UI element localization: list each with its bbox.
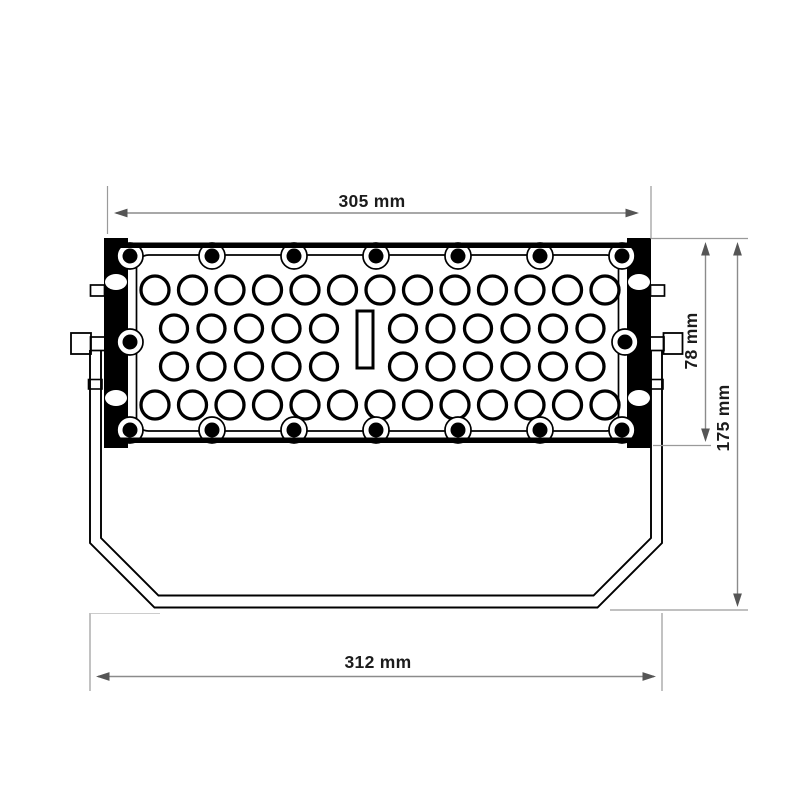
hinge-neck-left — [91, 337, 106, 351]
dimension-label-bottom-width: 312 mm — [345, 652, 412, 672]
vent-hole — [516, 391, 544, 419]
pin-left — [91, 285, 105, 296]
screw-head — [123, 423, 138, 438]
screw-head — [618, 335, 633, 350]
screw-head — [615, 249, 630, 264]
vent-hole — [273, 353, 300, 380]
screw-head — [533, 249, 548, 264]
hinge-knob-left — [71, 333, 91, 354]
vent-hole — [161, 315, 188, 342]
dimension-drawing-page: 305 mm 78 mm 175 mm 312 m — [0, 0, 800, 800]
hinge-neck-right — [650, 337, 664, 351]
vent-hole — [540, 315, 567, 342]
dimension-label-overall-height: 175 mm — [713, 385, 733, 452]
vent-hole — [441, 391, 469, 419]
vent-hole — [516, 276, 544, 304]
vent-hole — [390, 315, 417, 342]
vent-hole — [141, 276, 169, 304]
vent-hole — [329, 276, 357, 304]
vent-hole — [427, 353, 454, 380]
vent-hole — [554, 391, 582, 419]
screw-head — [123, 249, 138, 264]
vent-hole — [366, 391, 394, 419]
vent-hole — [329, 391, 357, 419]
vent-hole — [179, 391, 207, 419]
vent-hole — [502, 353, 529, 380]
vent-hole — [291, 391, 319, 419]
screw-head — [205, 423, 220, 438]
vent-hole — [479, 276, 507, 304]
screw-head — [451, 249, 466, 264]
arrowhead-left — [114, 209, 128, 218]
vent-hole — [236, 315, 263, 342]
vent-hole — [502, 315, 529, 342]
vent-hole — [273, 315, 300, 342]
vent-hole — [198, 353, 225, 380]
screw-head — [451, 423, 466, 438]
body-edge-top — [106, 243, 649, 249]
vent-hole — [554, 276, 582, 304]
vent-hole — [254, 391, 282, 419]
bracket-hole — [628, 274, 650, 290]
screw-head — [533, 423, 548, 438]
vent-hole — [216, 391, 244, 419]
arrowhead-right — [626, 209, 640, 218]
vent-hole — [540, 353, 567, 380]
body-edge-bottom — [106, 438, 649, 444]
vent-hole — [404, 276, 432, 304]
vent-hole — [311, 315, 338, 342]
dimension-top-width: 305 mm — [108, 186, 652, 239]
vent-hole — [216, 276, 244, 304]
vent-hole — [465, 353, 492, 380]
bracket-hole — [105, 390, 127, 406]
vent-hole — [311, 353, 338, 380]
screw-head — [123, 335, 138, 350]
screw-head — [287, 423, 302, 438]
vent-hole — [254, 276, 282, 304]
vent-hole — [479, 391, 507, 419]
dimension-bottom-width: 312 mm — [90, 613, 662, 691]
screw-head — [205, 249, 220, 264]
dimension-label-top-width: 305 mm — [339, 191, 406, 211]
vent-hole — [198, 315, 225, 342]
vent-hole — [366, 276, 394, 304]
bracket-hole — [105, 274, 127, 290]
vent-hole — [577, 315, 604, 342]
vent-hole — [141, 391, 169, 419]
bracket-hole — [628, 390, 650, 406]
vent-hole — [591, 276, 619, 304]
vent-hole — [404, 391, 432, 419]
vent-hole — [427, 315, 454, 342]
floodlight-dimension-drawing: 305 mm 78 mm 175 mm 312 m — [0, 0, 800, 800]
vent-hole — [179, 276, 207, 304]
vent-hole — [591, 391, 619, 419]
dimension-label-bracket-height: 78 mm — [681, 313, 701, 370]
screw-head — [369, 423, 384, 438]
hinge-knob-right — [664, 333, 683, 354]
vent-hole — [390, 353, 417, 380]
vent-hole — [577, 353, 604, 380]
screw-head — [369, 249, 384, 264]
vent-hole — [291, 276, 319, 304]
vent-hole — [441, 276, 469, 304]
vent-hole — [161, 353, 188, 380]
vent-hole — [465, 315, 492, 342]
pin-right — [651, 285, 665, 296]
screw-head — [287, 249, 302, 264]
vent-hole — [236, 353, 263, 380]
screw-head — [615, 423, 630, 438]
